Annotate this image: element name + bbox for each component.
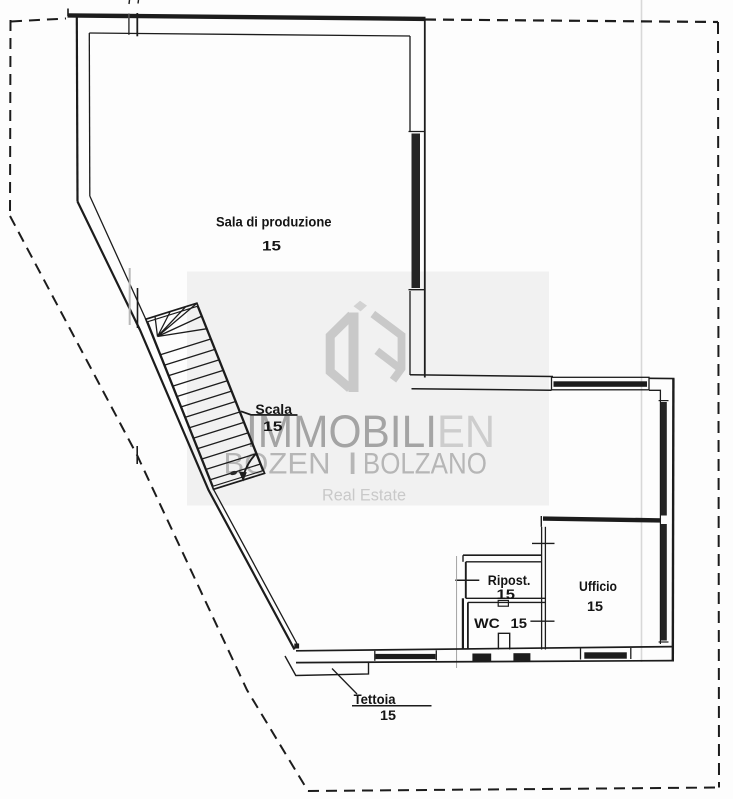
svg-text:15: 15 xyxy=(262,238,282,253)
svg-text:WC: WC xyxy=(474,616,500,631)
svg-text:Scala: Scala xyxy=(255,402,292,417)
svg-text:BOLZANO: BOLZANO xyxy=(363,448,487,481)
svg-text:15: 15 xyxy=(497,587,516,602)
svg-text:15: 15 xyxy=(380,708,397,723)
svg-text:Real Estate: Real Estate xyxy=(322,487,406,505)
svg-text:15: 15 xyxy=(511,616,528,631)
svg-text:15: 15 xyxy=(587,599,604,614)
svg-text:Tettoia: Tettoia xyxy=(354,692,396,707)
svg-text:15: 15 xyxy=(263,419,283,434)
svg-text:Sala di produzione: Sala di produzione xyxy=(216,215,332,230)
svg-text:BOZEN: BOZEN xyxy=(224,448,331,481)
svg-text:Ripost.: Ripost. xyxy=(488,573,531,588)
svg-text:Ufficio: Ufficio xyxy=(579,579,617,594)
